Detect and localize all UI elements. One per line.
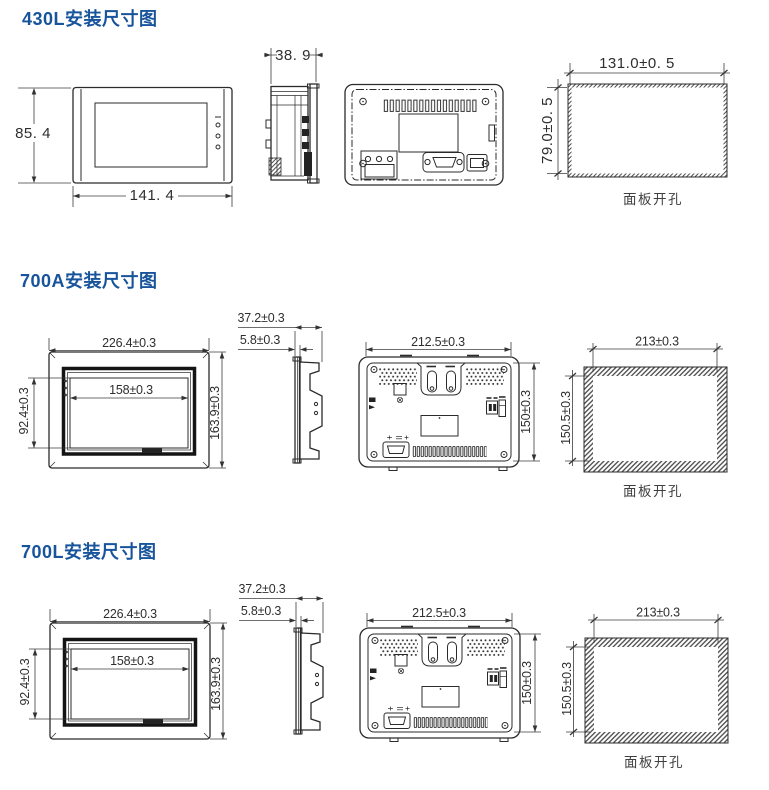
dim-cutout-width-700a: 213±0.3 (635, 335, 679, 349)
dim-side-depth-700l: 37.2±0.3 (239, 582, 286, 596)
side-view-430l: 38. 9 (264, 47, 323, 183)
panel-cutout-700l: 213±0.3 150.5±0.3 面板开孔 (560, 606, 728, 771)
section-title-430l: 430L安装尺寸图 (22, 8, 158, 29)
mount-clip-slot (447, 371, 456, 392)
power-connector (384, 707, 410, 729)
dim-back-width-700a: 212.5±0.3 (411, 335, 465, 349)
lock-icon (370, 669, 377, 674)
dim-screen-width-700a: 158±0.3 (109, 383, 153, 397)
arrow-icon (370, 676, 376, 680)
dim-screen-width-700l: 158±0.3 (110, 654, 154, 668)
dim-screen-height-700l: 92.4±0.3 (18, 658, 32, 705)
screen-area (95, 103, 207, 167)
panel-cutout-700a: 213±0.3 150.5±0.3 面板开孔 (559, 335, 727, 500)
power-terminal (361, 151, 397, 179)
dim-cutout-width-700l: 213±0.3 (636, 606, 680, 620)
logo-bar (142, 449, 162, 454)
section-title-700a: 700A安装尺寸图 (20, 270, 158, 291)
dim-side-bezel-700a: 5.8±0.3 (240, 333, 280, 347)
arrow-icon (369, 405, 375, 409)
front-view-700a: 226.4±0.3 163.9±0.3 158±0.3 92.4±0.3 (17, 336, 226, 468)
back-view-700a: 212.5±0.3 150±0.3 (359, 335, 540, 471)
vent-slots-bottom (414, 717, 488, 728)
dim-cutout-height-430l: 79.0±0. 5 (539, 97, 556, 164)
dim-cutout-height-700a: 150.5±0.3 (559, 391, 573, 445)
panel-cutout-430l: 131.0±0. 5 79.0±0. 5 面板开孔 (539, 55, 730, 207)
section-700l: 700L安装尺寸图 226.4±0.3 163.9±0.3 158±0.3 92… (18, 541, 728, 770)
dim-side-depth-700a: 37.2±0.3 (238, 311, 285, 325)
cutout-caption-700a: 面板开孔 (623, 484, 683, 499)
dim-back-height-700a: 150±0.3 (519, 390, 533, 434)
mount-clip-slot (429, 642, 438, 663)
section-title-700l: 700L安装尺寸图 (21, 541, 157, 562)
dim-front-height-700a: 163.9±0.3 (208, 386, 222, 440)
cutout-caption-700l: 面板开孔 (624, 755, 684, 770)
side-view-700a: 37.2±0.3 5.8±0.3 (238, 311, 322, 463)
dim-cutout-height-700l: 150.5±0.3 (560, 662, 574, 716)
section-700a: 700A安装尺寸图 226.4±0.3 163.9±0.3 158±0.3 92… (17, 270, 727, 499)
dim-cutout-width-430l: 131.0±0. 5 (599, 55, 675, 72)
dim-front-height-700l: 163.9±0.3 (209, 657, 223, 711)
lock-icon (369, 398, 376, 403)
mount-clip-slot (428, 371, 437, 392)
power-connector (383, 436, 409, 458)
mount-clip-slot (448, 642, 457, 663)
db9-connector (423, 153, 464, 173)
cutout-caption-430l: 面板开孔 (623, 192, 683, 207)
dim-back-height-700l: 150±0.3 (520, 661, 534, 705)
vent-slots-bottom (413, 446, 487, 457)
side-view-700l: 37.2±0.3 5.8±0.3 (239, 582, 323, 734)
vent-slots (383, 100, 477, 113)
dim-screen-height-700a: 92.4±0.3 (17, 387, 31, 434)
front-view-700l: 226.4±0.3 163.9±0.3 158±0.3 92.4±0.3 (18, 607, 227, 739)
mount-clip-recess (417, 363, 465, 395)
dim-back-width-700l: 212.5±0.3 (412, 606, 466, 620)
section-430l: 430L安装尺寸图 85. 4 141. 4 38. 9 (15, 8, 730, 207)
indicator-led (216, 134, 220, 138)
dimension-sheet: 430L安装尺寸图 85. 4 141. 4 38. 9 (0, 0, 769, 790)
mount-clip-recess (418, 634, 466, 666)
back-view-430l (345, 85, 503, 186)
connector-block (269, 158, 281, 175)
nameplate (399, 114, 458, 152)
installation-dimension-diagram: 430L安装尺寸图 85. 4 141. 4 38. 9 (0, 0, 769, 790)
dim-front-height-430l: 85. 4 (15, 125, 51, 142)
dip-switch (487, 398, 498, 414)
dim-side-bezel-700l: 5.8±0.3 (241, 604, 281, 618)
indicator-led (216, 145, 220, 149)
dim-side-depth-430l: 38. 9 (275, 47, 311, 64)
usb-port (467, 155, 487, 172)
vent-dots-right (467, 639, 505, 658)
logo-bar (143, 720, 163, 725)
dip-switch (488, 669, 499, 685)
indicator-led (216, 123, 220, 127)
front-view-430l: 85. 4 141. 4 (15, 88, 232, 208)
vent-dots-right (466, 368, 504, 387)
dim-front-width-430l: 141. 4 (130, 187, 175, 204)
dim-front-width-700l: 226.4±0.3 (103, 607, 157, 621)
dim-front-width-700a: 226.4±0.3 (102, 336, 156, 350)
back-view-700l: 212.5±0.3 150±0.3 (360, 606, 541, 742)
